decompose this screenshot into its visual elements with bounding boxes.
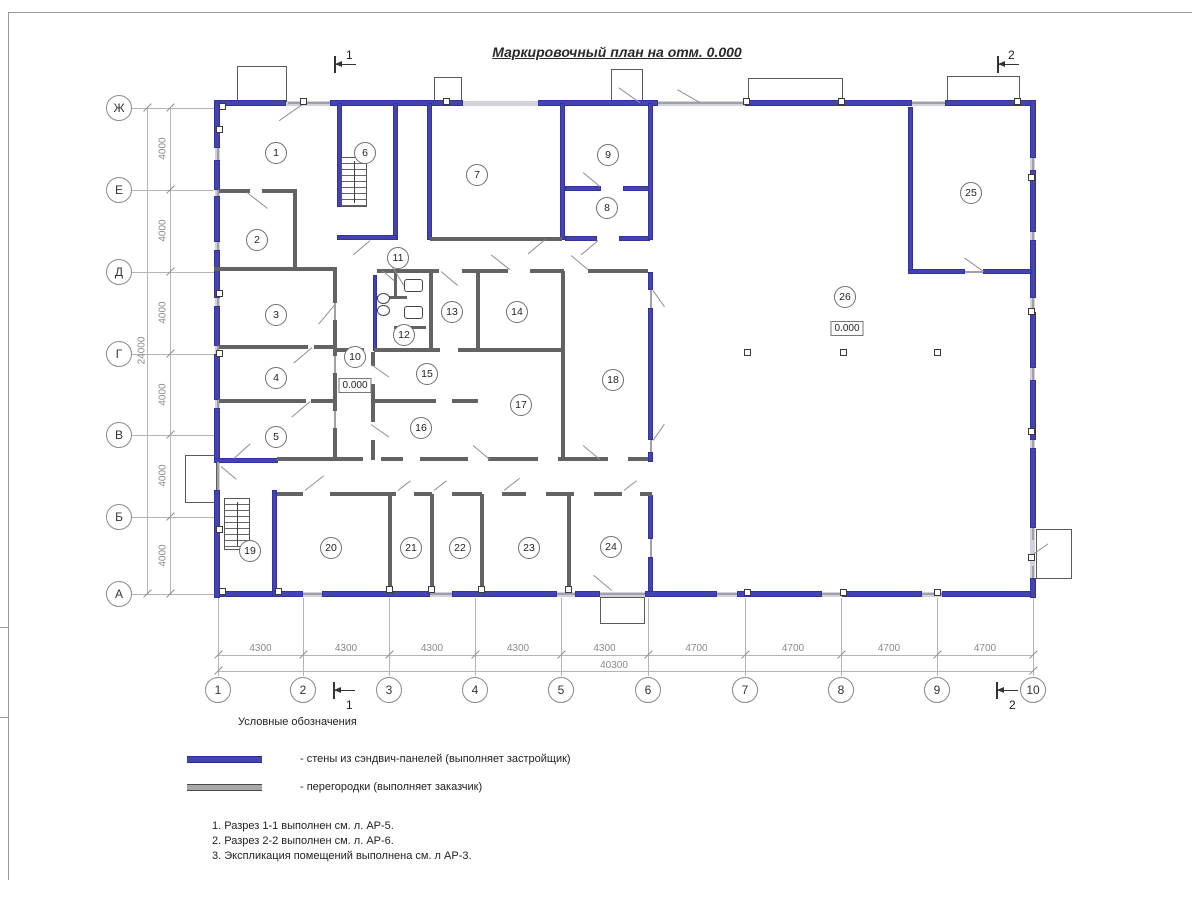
- column-marker: [216, 290, 223, 297]
- column-marker: [838, 98, 845, 105]
- grid-bubble-row: Б: [106, 504, 132, 530]
- partition-wall: [628, 457, 648, 461]
- grid-line: [303, 598, 304, 676]
- door-line: [434, 480, 447, 491]
- door-line: [624, 480, 637, 491]
- dimension-label-col: 4700: [768, 643, 818, 654]
- grid-bubble-row: Д: [106, 259, 132, 285]
- sandwich-wall: [218, 591, 303, 597]
- partition-wall: [452, 492, 482, 496]
- grid-line: [218, 598, 219, 676]
- door-line: [473, 445, 491, 460]
- sandwich-wall: [1030, 100, 1036, 158]
- legend-heading: Условные обозначения: [238, 716, 357, 728]
- wall-opening-line: [334, 411, 336, 428]
- door-line: [279, 104, 303, 121]
- partition-wall: [429, 271, 433, 350]
- grid-line: [561, 598, 562, 676]
- wall-opening-line: [1032, 528, 1034, 540]
- wall-opening-line: [1032, 368, 1034, 380]
- room-number: 10: [344, 346, 366, 368]
- sandwich-wall: [648, 495, 653, 539]
- sandwich-wall: [214, 306, 220, 346]
- column-marker: [934, 589, 941, 596]
- grid-bubble-col: 10: [1020, 677, 1046, 703]
- porch-outline: [611, 69, 643, 102]
- column-marker: [840, 349, 847, 356]
- wall-opening-line: [1032, 566, 1034, 578]
- partition-wall: [420, 457, 468, 461]
- partition-wall: [530, 269, 564, 273]
- room-number: 2: [246, 229, 268, 251]
- sandwich-wall: [619, 236, 650, 241]
- grid-bubble-row: А: [106, 581, 132, 607]
- grid-line: [389, 598, 390, 676]
- sheet-frame-left: [8, 12, 9, 880]
- grid-bubble-row: Ж: [106, 95, 132, 121]
- column-marker: [386, 586, 393, 593]
- column-marker: [744, 589, 751, 596]
- partition-wall: [218, 345, 308, 349]
- door-line: [234, 443, 251, 459]
- column-marker: [1028, 428, 1035, 435]
- partition-wall: [480, 494, 484, 593]
- room-number: 12: [393, 324, 415, 346]
- partition-wall: [371, 440, 375, 460]
- dimension-label-row: 4000: [158, 211, 169, 251]
- stair-arrow: [237, 502, 238, 546]
- wall-opening-line: [965, 271, 983, 273]
- elevation-badge: 0.000: [338, 378, 371, 393]
- legend-item-label: - стены из сэндвич-панелей (выполняет за…: [300, 753, 571, 765]
- dimension-total-row: 24000: [137, 329, 148, 373]
- wall-opening-line: [658, 102, 745, 104]
- room-number: 25: [960, 182, 982, 204]
- wall-opening-line: [650, 539, 652, 557]
- sandwich-wall: [565, 186, 601, 191]
- door-line: [504, 478, 520, 491]
- dimension-label-row: 4000: [158, 129, 169, 169]
- sink-icon: [377, 293, 390, 304]
- room-number: 26: [834, 286, 856, 308]
- dimension-label-col: 4300: [236, 643, 286, 654]
- sandwich-wall: [842, 591, 922, 597]
- sandwich-wall: [1030, 578, 1036, 598]
- sandwich-wall: [560, 103, 565, 240]
- dimension-label-row: 4000: [158, 456, 169, 496]
- grid-bubble-row: Е: [106, 177, 132, 203]
- wall-opening-line: [217, 242, 219, 250]
- section-marker-arrow: [335, 61, 342, 67]
- room-number: 13: [441, 301, 463, 323]
- room-number: 7: [466, 164, 488, 186]
- sandwich-wall: [942, 591, 1033, 597]
- partition-wall: [452, 399, 478, 403]
- column-marker: [216, 350, 223, 357]
- sandwich-wall: [373, 275, 377, 351]
- sheet-frame-top: [8, 12, 1192, 13]
- sandwich-wall: [337, 235, 397, 240]
- partition-wall: [214, 267, 337, 271]
- dimension-label-col: 4300: [321, 643, 371, 654]
- grid-bubble-col: 2: [290, 677, 316, 703]
- wall-opening-line: [334, 356, 336, 373]
- door-line: [491, 254, 511, 270]
- grid-bubble-col: 1: [205, 677, 231, 703]
- grid-bubble-col: 7: [732, 677, 758, 703]
- dimension-label-col: 4700: [960, 643, 1010, 654]
- partition-wall: [277, 492, 303, 496]
- grid-line: [937, 598, 938, 676]
- door-line: [318, 305, 334, 324]
- grid-bubble-col: 4: [462, 677, 488, 703]
- section-marker-arrow: [997, 687, 1004, 693]
- column-marker: [216, 526, 223, 533]
- door-line: [581, 240, 599, 255]
- porch-outline: [1036, 529, 1072, 579]
- dim-line-horizontal: [218, 671, 1033, 672]
- sheet-frame-stub: [0, 717, 9, 718]
- room-number: 4: [265, 367, 287, 389]
- wall-opening-line: [600, 593, 645, 595]
- door-line: [371, 364, 390, 378]
- section-marker-arrow: [334, 687, 341, 693]
- grid-line: [745, 598, 746, 676]
- wall-opening-line: [217, 462, 219, 490]
- wall-opening-line: [217, 148, 219, 160]
- partition-wall: [381, 457, 403, 461]
- drawing-sheet: Маркировочный план на отм. 0.000 1234567…: [0, 0, 1200, 900]
- sandwich-wall: [322, 591, 430, 597]
- dimension-label-col: 4700: [672, 643, 722, 654]
- door-line: [583, 172, 601, 187]
- grid-bubble-col: 8: [828, 677, 854, 703]
- porch-outline: [600, 597, 645, 624]
- partition-wall: [388, 494, 392, 593]
- sink-icon: [377, 305, 390, 316]
- toilet-icon: [404, 306, 423, 319]
- partition-wall: [462, 269, 508, 273]
- wall-opening-line: [822, 593, 842, 595]
- room-number: 1: [265, 142, 287, 164]
- wall-opening-line: [303, 593, 322, 595]
- grid-bubble-row: Г: [106, 341, 132, 367]
- sandwich-wall: [565, 236, 597, 241]
- partition-wall: [567, 494, 571, 593]
- sheet-frame-stub: [0, 627, 9, 628]
- partition-wall: [374, 399, 436, 403]
- wall-opening-line: [1032, 158, 1034, 170]
- dimension-label-col: 4700: [864, 643, 914, 654]
- partition-wall: [588, 269, 648, 273]
- partition-wall: [640, 492, 652, 496]
- section-marker-label: 1: [346, 698, 353, 712]
- porch-outline: [237, 66, 287, 102]
- wall-opening-line: [217, 298, 219, 306]
- dimension-label-col: 4300: [407, 643, 457, 654]
- column-marker: [565, 586, 572, 593]
- column-marker: [743, 98, 750, 105]
- door-line: [528, 239, 546, 254]
- wall-opening-line: [650, 440, 652, 452]
- grid-bubble-col: 6: [635, 677, 661, 703]
- wall-opening-line: [1032, 232, 1034, 240]
- column-marker: [744, 349, 751, 356]
- sandwich-wall: [214, 408, 220, 460]
- partition-wall: [333, 267, 337, 303]
- sandwich-wall: [272, 490, 277, 597]
- porch-outline: [185, 455, 217, 503]
- wall-opening-line: [430, 593, 452, 595]
- partition-wall: [218, 189, 250, 193]
- note-line: 1. Разрез 1-1 выполнен см. л. АР-5.: [212, 820, 394, 832]
- door-line: [441, 271, 459, 286]
- note-line: 2. Разрез 2-2 выполнен см. л. АР-6.: [212, 835, 394, 847]
- sandwich-wall: [575, 591, 600, 597]
- dimension-label-row: 4000: [158, 293, 169, 333]
- grid-bubble-col: 9: [924, 677, 950, 703]
- room-number: 16: [410, 417, 432, 439]
- sandwich-wall: [1030, 312, 1036, 368]
- room-number: 8: [596, 197, 618, 219]
- section-marker-arrow: [998, 61, 1005, 67]
- dim-line-horizontal: [218, 655, 1033, 656]
- dimension-total-col: 40300: [588, 660, 640, 671]
- wall-opening-line: [1032, 440, 1034, 448]
- room-number: 3: [265, 304, 287, 326]
- sandwich-wall: [645, 591, 717, 597]
- door-line: [653, 424, 665, 441]
- door-line: [305, 475, 325, 491]
- grid-line: [475, 598, 476, 676]
- column-marker: [300, 98, 307, 105]
- sandwich-wall: [452, 591, 557, 597]
- section-marker-label: 2: [1009, 698, 1016, 712]
- column-marker: [275, 588, 282, 595]
- sandwich-wall: [745, 100, 912, 106]
- partition-wall: [476, 271, 480, 350]
- column-marker: [216, 126, 223, 133]
- sandwich-wall: [1030, 448, 1036, 528]
- partition-wall: [277, 457, 337, 461]
- partition-wall: [293, 189, 297, 270]
- sandwich-wall: [214, 458, 278, 463]
- grid-line: [132, 190, 214, 191]
- sandwich-wall: [214, 354, 220, 400]
- room-number: 15: [416, 363, 438, 385]
- door-line: [291, 401, 310, 417]
- dimension-label-col: 4300: [580, 643, 630, 654]
- column-marker: [1028, 554, 1035, 561]
- dimension-label-row: 4000: [158, 374, 169, 414]
- door-line: [653, 290, 665, 307]
- partition-wall: [337, 457, 363, 461]
- door-line: [964, 257, 984, 272]
- room-number: 5: [265, 426, 287, 448]
- grid-bubble-col: 3: [376, 677, 402, 703]
- wall-opening-line: [288, 102, 330, 104]
- door-line: [398, 480, 411, 491]
- grid-bubble-row: В: [106, 422, 132, 448]
- sandwich-wall: [214, 490, 220, 598]
- room-number: 17: [510, 394, 532, 416]
- wall-opening-line: [217, 190, 219, 196]
- partition-wall: [371, 384, 375, 422]
- partition-wall: [430, 494, 434, 593]
- partition-wall: [262, 189, 297, 193]
- sandwich-wall: [983, 269, 1032, 274]
- sandwich-wall: [218, 100, 286, 106]
- sandwich-wall: [908, 107, 913, 274]
- room-number: 24: [600, 536, 622, 558]
- partition-wall: [218, 399, 306, 403]
- partition-wall: [561, 271, 565, 460]
- partition-wall: [314, 345, 334, 349]
- grid-line: [1033, 598, 1034, 676]
- door-line: [247, 192, 268, 209]
- door-line: [571, 255, 589, 270]
- legend-swatch: [187, 756, 262, 763]
- partition-wall: [333, 428, 337, 460]
- wall-opening-line: [717, 593, 737, 595]
- room-number: 23: [518, 537, 540, 559]
- grid-line: [841, 598, 842, 676]
- sandwich-wall: [648, 308, 653, 440]
- room-number: 22: [449, 537, 471, 559]
- column-marker: [1028, 174, 1035, 181]
- column-marker: [1028, 308, 1035, 315]
- grid-line: [648, 598, 649, 676]
- dimension-label-row: 4000: [158, 535, 169, 575]
- note-line: 3. Экспликация помещений выполнена см. л…: [212, 850, 472, 862]
- room-number: 21: [400, 537, 422, 559]
- wall-opening-line: [217, 400, 219, 408]
- sandwich-wall: [908, 269, 965, 274]
- grid-line: [132, 435, 214, 436]
- section-marker-label: 1: [346, 48, 353, 62]
- sandwich-wall: [393, 103, 398, 240]
- column-marker: [443, 98, 450, 105]
- sandwich-wall: [648, 272, 653, 290]
- room-number: 11: [387, 247, 409, 269]
- sandwich-wall: [623, 186, 650, 191]
- column-marker: [934, 349, 941, 356]
- partition-wall: [488, 457, 538, 461]
- column-marker: [478, 586, 485, 593]
- section-marker-label: 2: [1008, 48, 1015, 62]
- door-line: [353, 240, 371, 255]
- partition-wall: [311, 399, 334, 403]
- sandwich-wall: [648, 557, 653, 592]
- toilet-icon: [404, 279, 423, 292]
- column-marker: [219, 588, 226, 595]
- room-number: 19: [239, 540, 261, 562]
- stair-arrow: [354, 161, 355, 203]
- partition-wall: [333, 373, 337, 411]
- grid-bubble-col: 5: [548, 677, 574, 703]
- room-number: 9: [597, 144, 619, 166]
- partition-wall: [374, 348, 440, 352]
- sandwich-wall: [648, 103, 653, 240]
- partition-wall: [458, 348, 562, 352]
- room-number: 14: [506, 301, 528, 323]
- partition-wall: [502, 492, 526, 496]
- wall-opening-line: [912, 102, 945, 104]
- column-marker: [428, 586, 435, 593]
- grid-line: [132, 272, 214, 273]
- floor-plan-canvas: 1234567891011121314151617181920212223242…: [0, 0, 1200, 900]
- room-number: 18: [602, 369, 624, 391]
- dimension-label-col: 4300: [493, 643, 543, 654]
- partition-wall: [558, 457, 608, 461]
- sandwich-wall: [214, 196, 220, 242]
- room-number: 20: [320, 537, 342, 559]
- sandwich-wall: [427, 103, 432, 240]
- door-line: [593, 575, 612, 591]
- elevation-badge: 0.000: [830, 321, 863, 336]
- partition-wall: [594, 492, 622, 496]
- column-marker: [840, 589, 847, 596]
- partition-wall: [330, 492, 396, 496]
- room-number: 6: [354, 142, 376, 164]
- grid-line: [132, 517, 214, 518]
- wall-opening-line: [557, 593, 575, 595]
- porch-outline: [748, 78, 843, 102]
- column-marker: [219, 103, 226, 110]
- door-line: [221, 466, 237, 480]
- sandwich-wall: [648, 452, 653, 462]
- porch-outline: [947, 76, 1020, 102]
- legend-item-label: - перегородки (выполняет заказчик): [300, 781, 482, 793]
- legend-swatch: [187, 784, 262, 791]
- door-line: [371, 424, 390, 438]
- wall-opening-line: [650, 290, 652, 308]
- sandwich-wall: [214, 160, 220, 190]
- column-marker: [1014, 98, 1021, 105]
- door-line: [293, 347, 312, 363]
